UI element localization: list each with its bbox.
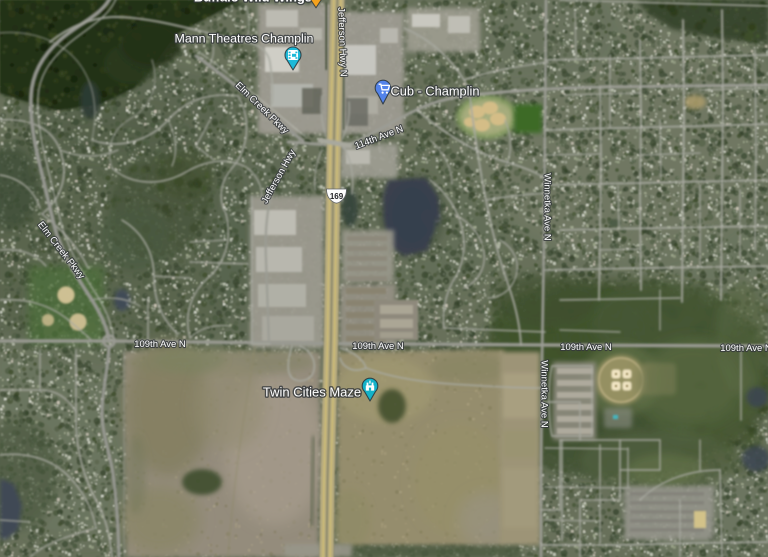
svg-text:109th Ave N: 109th Ave N	[720, 343, 768, 354]
svg-text:169: 169	[330, 192, 344, 201]
svg-text:109th Ave N: 109th Ave N	[352, 341, 404, 352]
svg-text:109th Ave N: 109th Ave N	[134, 339, 186, 350]
svg-text:109th Ave N: 109th Ave N	[560, 342, 612, 353]
svg-text:Winnetka Ave N: Winnetka Ave N	[539, 360, 550, 428]
svg-text:Winnetka Ave N: Winnetka Ave N	[542, 173, 553, 241]
svg-text:Cub - Champlin: Cub - Champlin	[391, 84, 480, 99]
svg-text:Mann Theatres Champlin: Mann Theatres Champlin	[175, 32, 314, 46]
svg-text:Buffalo Wild Wings: Buffalo Wild Wings	[194, 0, 312, 5]
svg-text:Twin Cities Maze: Twin Cities Maze	[263, 385, 361, 400]
